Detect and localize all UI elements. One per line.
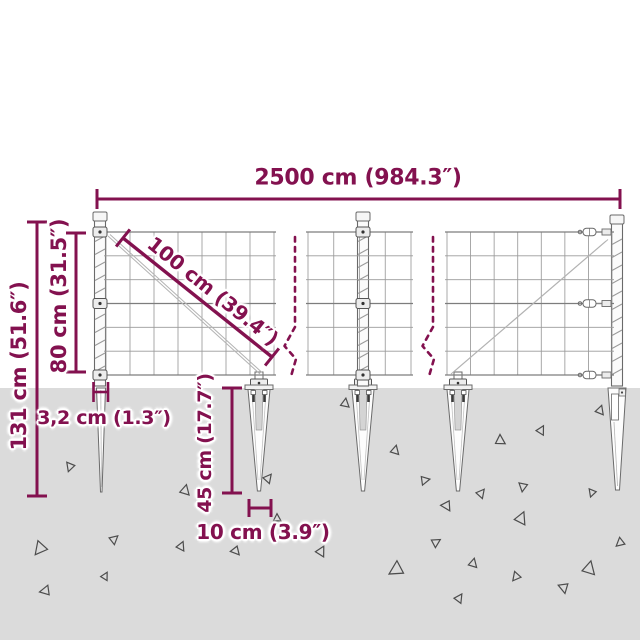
dim-spike-depth-label: 45 cm (17.7″) bbox=[194, 373, 216, 513]
dim-spike-width-label: 10 cm (3.9″) bbox=[196, 520, 330, 544]
diagram-canvas: 2500 cm (984.3″) 131 cm (51.6″) 80 cm (3… bbox=[0, 0, 640, 640]
dim-total-height-label: 131 cm (51.6″) bbox=[7, 282, 31, 451]
dim-total-length-label: 2500 cm (984.3″) bbox=[254, 166, 461, 191]
dim-mesh-height-label: 80 cm (31.5″) bbox=[47, 219, 71, 374]
fence-illustration bbox=[0, 0, 640, 640]
dim-post-diameter-label: 3,2 cm (1.3″) bbox=[37, 407, 171, 429]
